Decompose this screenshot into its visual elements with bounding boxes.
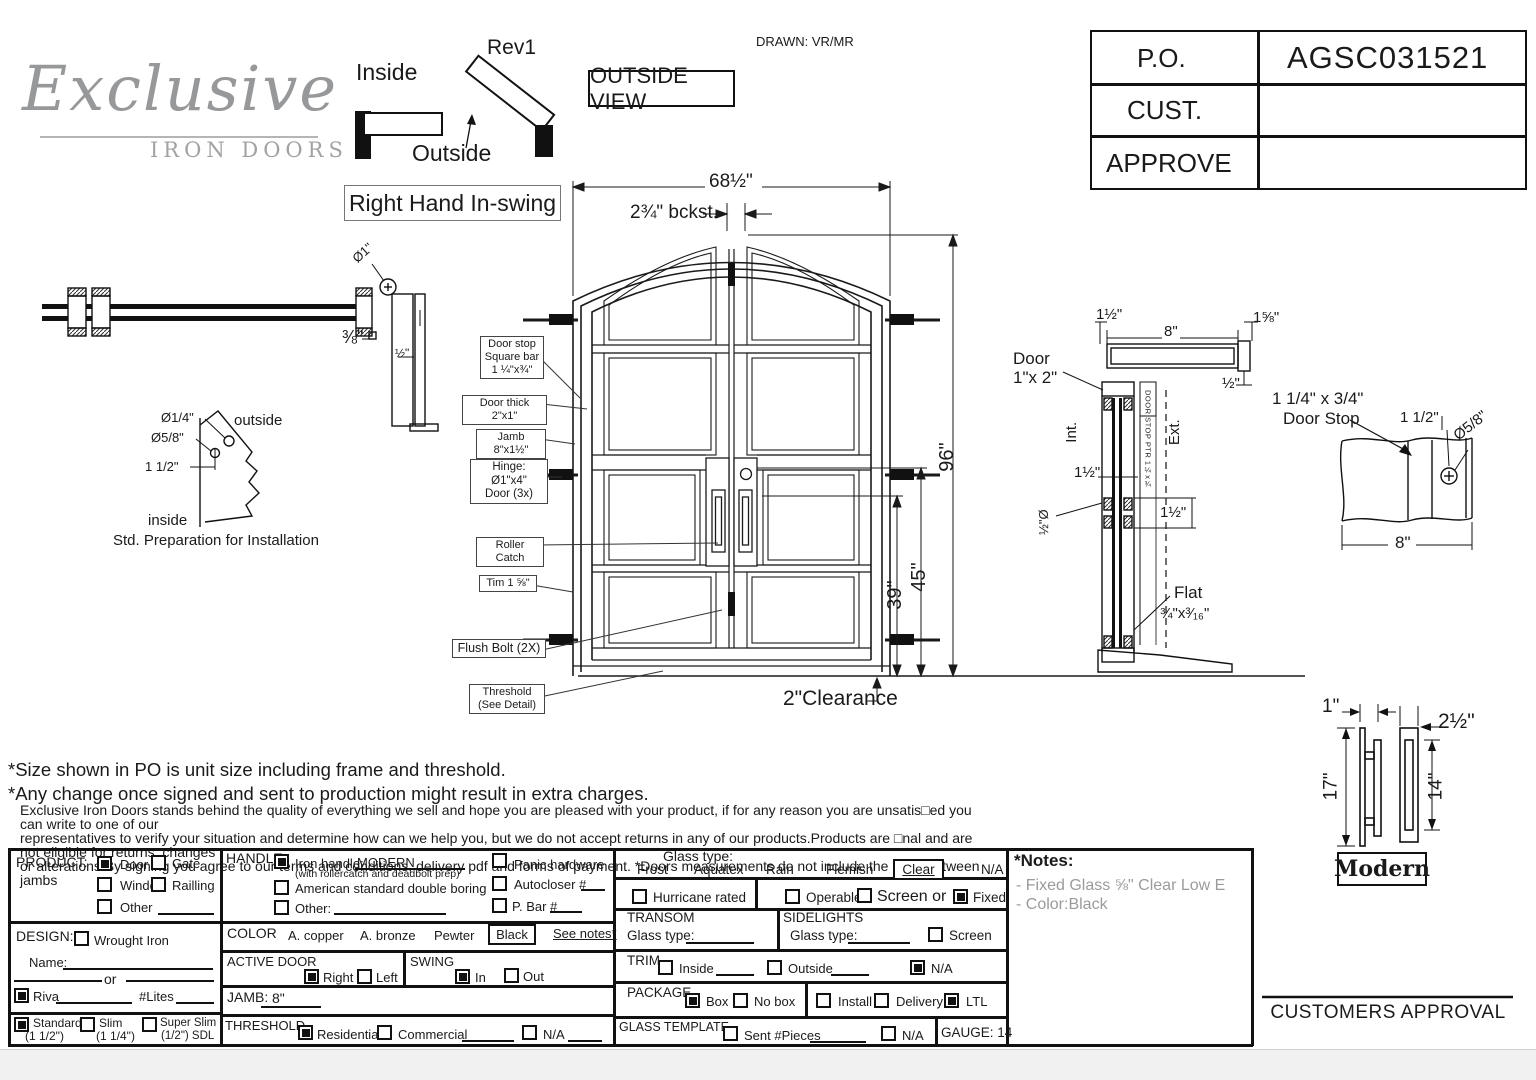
- dim-45: 45": [908, 557, 930, 597]
- prep-dia58: Ø5/8": [151, 431, 184, 445]
- dim-clearance: 2"Clearance: [783, 687, 898, 710]
- threshold-commercial-line[interactable]: [462, 1040, 514, 1042]
- handle-detail: [1337, 704, 1440, 846]
- handle-14: 14": [1427, 766, 1448, 806]
- color-copper[interactable]: A. copper: [288, 929, 344, 943]
- dim-39: 39": [884, 575, 906, 615]
- active-right-label: Right: [323, 971, 353, 985]
- design-riva-checkbox[interactable]: [14, 988, 29, 1003]
- handle-pbar-line[interactable]: [550, 911, 582, 913]
- transom-glass-label: Glass type:: [627, 929, 695, 944]
- design-wrought-checkbox[interactable]: [74, 931, 89, 946]
- package-label: PACKAGE: [627, 986, 691, 1001]
- product-door-checkbox[interactable]: [97, 856, 112, 871]
- sidelights-label: SIDELIGHTS: [783, 911, 863, 926]
- glass-flemish[interactable]: Flemish: [826, 863, 873, 878]
- hand-swing-label: Right Hand In-swing: [349, 190, 556, 217]
- jamb-ext: Ext.: [1167, 412, 1184, 452]
- po-value: AGSC031521: [1287, 41, 1488, 75]
- threshold-commercial-checkbox[interactable]: [377, 1025, 392, 1040]
- jamb-12: ½": [1222, 376, 1240, 393]
- sidelights-glass-line[interactable]: [848, 942, 910, 944]
- handle-17: 17": [1322, 766, 1343, 806]
- handle-panic-label: Panic hardware: [514, 858, 604, 872]
- screen-or-checkbox[interactable]: [857, 888, 872, 903]
- transom-label: TRANSOM: [627, 911, 695, 926]
- jamb-158: 1⅝": [1253, 310, 1279, 327]
- design-lites-label: #Lites: [139, 990, 174, 1004]
- inside-label: Inside: [356, 60, 417, 85]
- trim-inside-line[interactable]: [716, 974, 754, 976]
- dim-width: 68½": [706, 172, 756, 193]
- glass-selected-label: Clear: [902, 862, 934, 877]
- note-size: *Size shown in PO is unit size including…: [8, 760, 506, 780]
- prep-inside: inside: [148, 513, 187, 530]
- package-install-checkbox[interactable]: [816, 993, 831, 1008]
- callout-roller-catch: Roller Catch: [476, 537, 544, 567]
- door-spec-sheet: Exclusive IRON DOORS Rev1 DRAWN: VR/MR I…: [0, 0, 1536, 1080]
- logo-exclusive: Exclusive: [22, 52, 338, 125]
- jamb-int: Int.: [1064, 412, 1081, 452]
- design-lites-line[interactable]: [176, 1002, 214, 1004]
- package-box-checkbox[interactable]: [685, 993, 700, 1008]
- cust-label: CUST.: [1127, 96, 1202, 125]
- handle-iron-checkbox[interactable]: [274, 854, 289, 869]
- design-name-line[interactable]: [63, 968, 213, 970]
- product-other-checkbox[interactable]: [97, 899, 112, 914]
- package-delivery-label: Delivery: [896, 995, 943, 1009]
- notes-line1: - Fixed Glass ⅝" Clear Low E: [1016, 877, 1225, 895]
- swing-out-checkbox[interactable]: [504, 968, 519, 983]
- design-label: DESIGN:: [16, 929, 74, 944]
- trim-label: TRIM: [627, 954, 660, 969]
- approve-label: APPROVE: [1106, 149, 1232, 178]
- head-12-label: ½": [395, 347, 409, 360]
- callout-leaders: [532, 357, 722, 697]
- design-superslim-checkbox[interactable]: [142, 1017, 157, 1032]
- package-ltl-label: LTL: [966, 995, 987, 1009]
- glass-na[interactable]: N/A: [981, 863, 1004, 878]
- color-selected-box[interactable]: Black: [488, 924, 536, 945]
- stop-detail: [1341, 416, 1472, 550]
- jamb-form-line: [261, 1006, 321, 1008]
- handle-other-checkbox[interactable]: [274, 900, 289, 915]
- handle-american-checkbox[interactable]: [274, 880, 289, 895]
- hurricane-checkbox[interactable]: [632, 889, 647, 904]
- jamb-112-low: 1½": [1160, 505, 1186, 522]
- notes-line2: - Color:Black: [1016, 896, 1108, 914]
- po-label: P.O.: [1137, 44, 1186, 73]
- handle-panic-checkbox[interactable]: [492, 853, 507, 868]
- stop-name: Door Stop: [1283, 410, 1360, 429]
- product-gate-label: Gate: [172, 857, 200, 871]
- drawn-label: DRAWN: VR/MR: [756, 35, 854, 49]
- active-left-checkbox[interactable]: [357, 969, 372, 984]
- design-superslim-sub: (1/2") SDL: [161, 1030, 214, 1043]
- threshold-label: THRESHOLD: [225, 1019, 305, 1033]
- swing-out-label: Out: [523, 970, 544, 984]
- jamb-112-mid: 1½": [1074, 465, 1100, 482]
- callout-door-thick: Door thick 2"x1": [462, 395, 547, 425]
- prep-outside: outside: [234, 413, 282, 430]
- swing-in-label: In: [475, 971, 486, 985]
- glass-selected-box[interactable]: Clear: [893, 859, 944, 880]
- trim-na-label: N/A: [931, 962, 953, 976]
- active-right-checkbox[interactable]: [304, 969, 319, 984]
- package-nobox-checkbox[interactable]: [733, 993, 748, 1008]
- fixed-label: Fixed: [973, 891, 1006, 906]
- color-see-notes: See notes*: [553, 927, 617, 941]
- trim-inside-label: Inside: [679, 962, 714, 976]
- handle-style-box: Modern: [1337, 852, 1427, 886]
- callout-doorstop: Door stop Square bar 1 ¼"x¾": [480, 336, 544, 379]
- handle-american-label: American standard double boring: [295, 882, 487, 896]
- transom-glass-line[interactable]: [686, 942, 754, 944]
- product-label: PRODUCT:: [16, 855, 88, 870]
- handle-pbar-checkbox[interactable]: [492, 898, 507, 913]
- trim-outside-checkbox[interactable]: [767, 960, 782, 975]
- product-door-label: Door: [120, 858, 148, 872]
- threshold-residential-checkbox[interactable]: [298, 1025, 313, 1040]
- outside-view-label: OUTSIDE VIEW: [590, 63, 733, 115]
- threshold-na-checkbox[interactable]: [522, 1025, 537, 1040]
- active-left-label: Left: [376, 971, 398, 985]
- product-window-checkbox[interactable]: [97, 877, 112, 892]
- package-nobox-label: No box: [754, 995, 795, 1009]
- callout-threshold: Threshold (See Detail): [469, 684, 545, 714]
- dimension-lines: [573, 181, 958, 701]
- design-or-label: or: [104, 972, 116, 987]
- jamb-dia12: ½"Ø: [1037, 500, 1051, 544]
- jamb-flat-size: ¾"x³⁄₁₆": [1160, 606, 1209, 623]
- design-standard-sub: (1 1/2"): [25, 1030, 64, 1043]
- sidelights-screen-checkbox[interactable]: [928, 927, 943, 942]
- glass-frost[interactable]: Frost: [637, 863, 668, 878]
- handle-autocloser-checkbox[interactable]: [492, 876, 507, 891]
- trim-outside-label: Outside: [788, 962, 833, 976]
- trim-outside-line[interactable]: [831, 974, 869, 976]
- handle-other-line[interactable]: [334, 913, 446, 915]
- handle-1: 1": [1322, 697, 1339, 718]
- threshold-na-label: N/A: [543, 1028, 565, 1042]
- glass-template-sent-line[interactable]: [810, 1041, 866, 1043]
- trim-inside-checkbox[interactable]: [658, 960, 673, 975]
- jamb-door-size: Door 1"x 2": [1013, 350, 1057, 387]
- handle-other-label: Other:: [295, 902, 331, 916]
- handle-iron-sub: (with rollercatch and deadbolt prep): [295, 869, 460, 881]
- design-name-label: Name:: [29, 956, 67, 970]
- jamb-flat: Flat: [1174, 584, 1202, 603]
- po-table: P.O. AGSC031521 CUST. APPROVE: [1090, 30, 1527, 190]
- glass-aquatex[interactable]: Aquatex: [694, 863, 744, 878]
- color-pewter[interactable]: Pewter: [434, 929, 474, 943]
- jamb-stop-ptr: DOOR STOP PTR 1¼x¾: [1143, 390, 1151, 530]
- outside-label: Outside: [412, 141, 491, 166]
- operable-checkbox[interactable]: [785, 889, 800, 904]
- design-riva-line[interactable]: [56, 1002, 132, 1004]
- jamb-form-value: 8": [272, 991, 285, 1006]
- glass-template-sent-checkbox[interactable]: [723, 1026, 738, 1041]
- stop-8: 8": [1392, 534, 1414, 553]
- prep-dia14: Ø1/4": [161, 411, 194, 425]
- color-label: COLOR: [227, 926, 277, 941]
- fixed-checkbox[interactable]: [953, 889, 968, 904]
- color-bronze[interactable]: A. bronze: [360, 929, 416, 943]
- dim-height: 96": [936, 435, 958, 479]
- hand-swing-box: Right Hand In-swing: [344, 185, 561, 221]
- stop-size: 1 1/4" x 3/4": [1272, 390, 1363, 409]
- threshold-residential-label: Residential: [317, 1028, 381, 1042]
- page-bottom-strip: [0, 1049, 1536, 1080]
- handle-autocloser-line[interactable]: [581, 889, 605, 891]
- swing-in-checkbox[interactable]: [455, 969, 470, 984]
- color-selected-label: Black: [496, 927, 528, 942]
- logo-iron-doors: IRON DOORS: [150, 138, 348, 162]
- handle-style-label: Modern: [1334, 856, 1430, 882]
- design-superslim-label: Super Slim: [160, 1017, 216, 1030]
- product-other-label: Other: [120, 901, 153, 915]
- glass-rain[interactable]: Rain: [766, 863, 794, 878]
- notes-title: *Notes:: [1014, 852, 1074, 871]
- product-railing-label: Railling: [172, 879, 215, 893]
- swing-label: SWING: [410, 955, 454, 969]
- design-slim-checkbox[interactable]: [80, 1017, 95, 1032]
- package-install-label: Install: [838, 995, 872, 1009]
- handle-212: 2½": [1438, 710, 1475, 733]
- callout-flush-bolt: Flush Bolt (2X): [452, 639, 546, 658]
- package-delivery-checkbox[interactable]: [874, 993, 889, 1008]
- screen-or-label: Screen or: [877, 888, 946, 906]
- trim-na-checkbox[interactable]: [910, 960, 925, 975]
- dim-backset: 2¾" bckst.: [630, 203, 718, 224]
- handle-autocloser-label: Autocloser #: [514, 878, 586, 892]
- operable-label: Operable: [806, 891, 862, 906]
- product-other-line[interactable]: [158, 913, 214, 915]
- threshold-commercial-label: Commercial: [398, 1028, 467, 1042]
- head-section: [42, 264, 438, 431]
- jamb-8: 8": [1162, 324, 1180, 341]
- package-box-label: Box: [706, 995, 728, 1009]
- rev-label: Rev1: [487, 36, 536, 59]
- glass-template-label: GLASS TEMPLATE: [619, 1021, 729, 1035]
- outside-view-box: OUTSIDE VIEW: [588, 70, 735, 107]
- prep-caption: Std. Preparation for Installation: [113, 533, 319, 550]
- product-railing-checkbox[interactable]: [151, 877, 166, 892]
- package-ltl-checkbox[interactable]: [944, 993, 959, 1008]
- callout-jamb: Jamb 8"x1½": [476, 429, 546, 459]
- threshold-na-line[interactable]: [568, 1040, 602, 1042]
- product-gate-checkbox[interactable]: [151, 855, 166, 870]
- gauge-label: GAUGE: 14: [941, 1026, 1012, 1041]
- hurricane-label: Hurricane rated: [653, 891, 746, 906]
- jamb-form-label: JAMB:: [227, 990, 268, 1005]
- prep-112: 1 1/2": [145, 460, 179, 474]
- design-slim-sub: (1 1/4"): [96, 1030, 135, 1043]
- design-wrought-label: Wrought Iron: [94, 934, 169, 948]
- callout-trim: Tim 1 ⅝": [479, 575, 537, 592]
- active-door-label: ACTIVE DOOR: [227, 955, 317, 969]
- customers-approval-label: CUSTOMERS APPROVAL: [1268, 1003, 1508, 1024]
- glass-template-na-label: N/A: [902, 1029, 924, 1043]
- head-38-label: ⅜": [342, 328, 363, 348]
- callout-hinge: Hinge: Ø1"x4" Door (3x): [470, 459, 548, 504]
- jamb-112-top: 1½": [1096, 307, 1122, 324]
- glass-template-na-checkbox[interactable]: [881, 1026, 896, 1041]
- sidelights-screen-label: Screen: [949, 929, 992, 944]
- stop-112: 1 1/2": [1400, 410, 1439, 427]
